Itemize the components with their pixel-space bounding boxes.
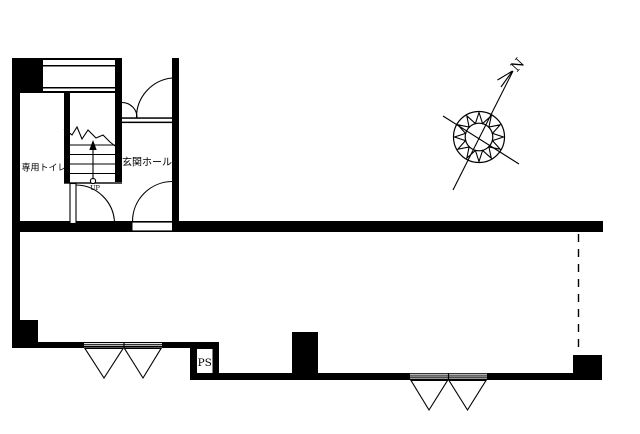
north-arrowhead-icon: [498, 71, 513, 87]
landing-line: [43, 91, 115, 93]
compass-outer-circle: [454, 112, 505, 163]
hall-right-wall: [172, 58, 179, 232]
door-swing-arc: [133, 182, 173, 222]
window-opening-triangle: [125, 349, 162, 379]
window-opening-triangle: [85, 349, 123, 379]
window-left: [84, 342, 162, 378]
pipe-space-label: PS: [198, 357, 212, 369]
threshold-line: [122, 122, 172, 124]
threshold-line: [133, 230, 173, 232]
pipe-space: PS: [190, 342, 219, 380]
window-frame-line: [84, 342, 162, 343]
threshold-line: [122, 117, 172, 119]
entrance-hall-label: 玄関ホール: [122, 156, 172, 169]
pillar: [292, 332, 318, 380]
window-right: [410, 373, 487, 410]
compass: N: [443, 55, 528, 190]
bottom-wall-left: [12, 342, 84, 348]
window-opening-triangle: [449, 381, 486, 411]
landing-line: [43, 65, 115, 67]
threshold-line: [133, 221, 173, 223]
staircase: [64, 127, 115, 174]
floor-plan-drawing: UP 専用トイレ 玄関ホール PS: [0, 0, 640, 434]
door-swing-arc: [76, 185, 115, 223]
window-opening-triangle: [411, 381, 448, 411]
hall-door: [133, 182, 173, 233]
door-swing-arc-large: [136, 78, 172, 118]
wall-segment: [12, 58, 20, 348]
walls: [12, 58, 603, 380]
compass-star-ring: [455, 113, 504, 162]
door-swing-arc-small: [122, 103, 137, 118]
wall-corner-block: [12, 58, 43, 93]
wall-segment: [43, 58, 122, 60]
door-leaf: [70, 184, 76, 224]
floor-plan: UP 専用トイレ 玄関ホール PS: [0, 0, 640, 434]
up-arrow-origin: [90, 178, 95, 183]
window-frame-line: [84, 346, 162, 347]
up-arrow: UP: [89, 140, 100, 192]
stair-break-line: [64, 127, 115, 146]
entry-double-door: [122, 78, 172, 123]
lower-wall-right: [487, 373, 573, 380]
stair-right-wall: [115, 58, 122, 182]
main-wall-band-right: [172, 221, 603, 232]
window-mullion: [448, 373, 449, 380]
step-block: [12, 320, 38, 342]
landing-line: [43, 87, 115, 89]
corner-block: [573, 355, 602, 380]
window-mullion: [123, 342, 124, 349]
toilet-label: 専用トイレ: [21, 162, 66, 174]
window-frame-line: [84, 344, 162, 345]
